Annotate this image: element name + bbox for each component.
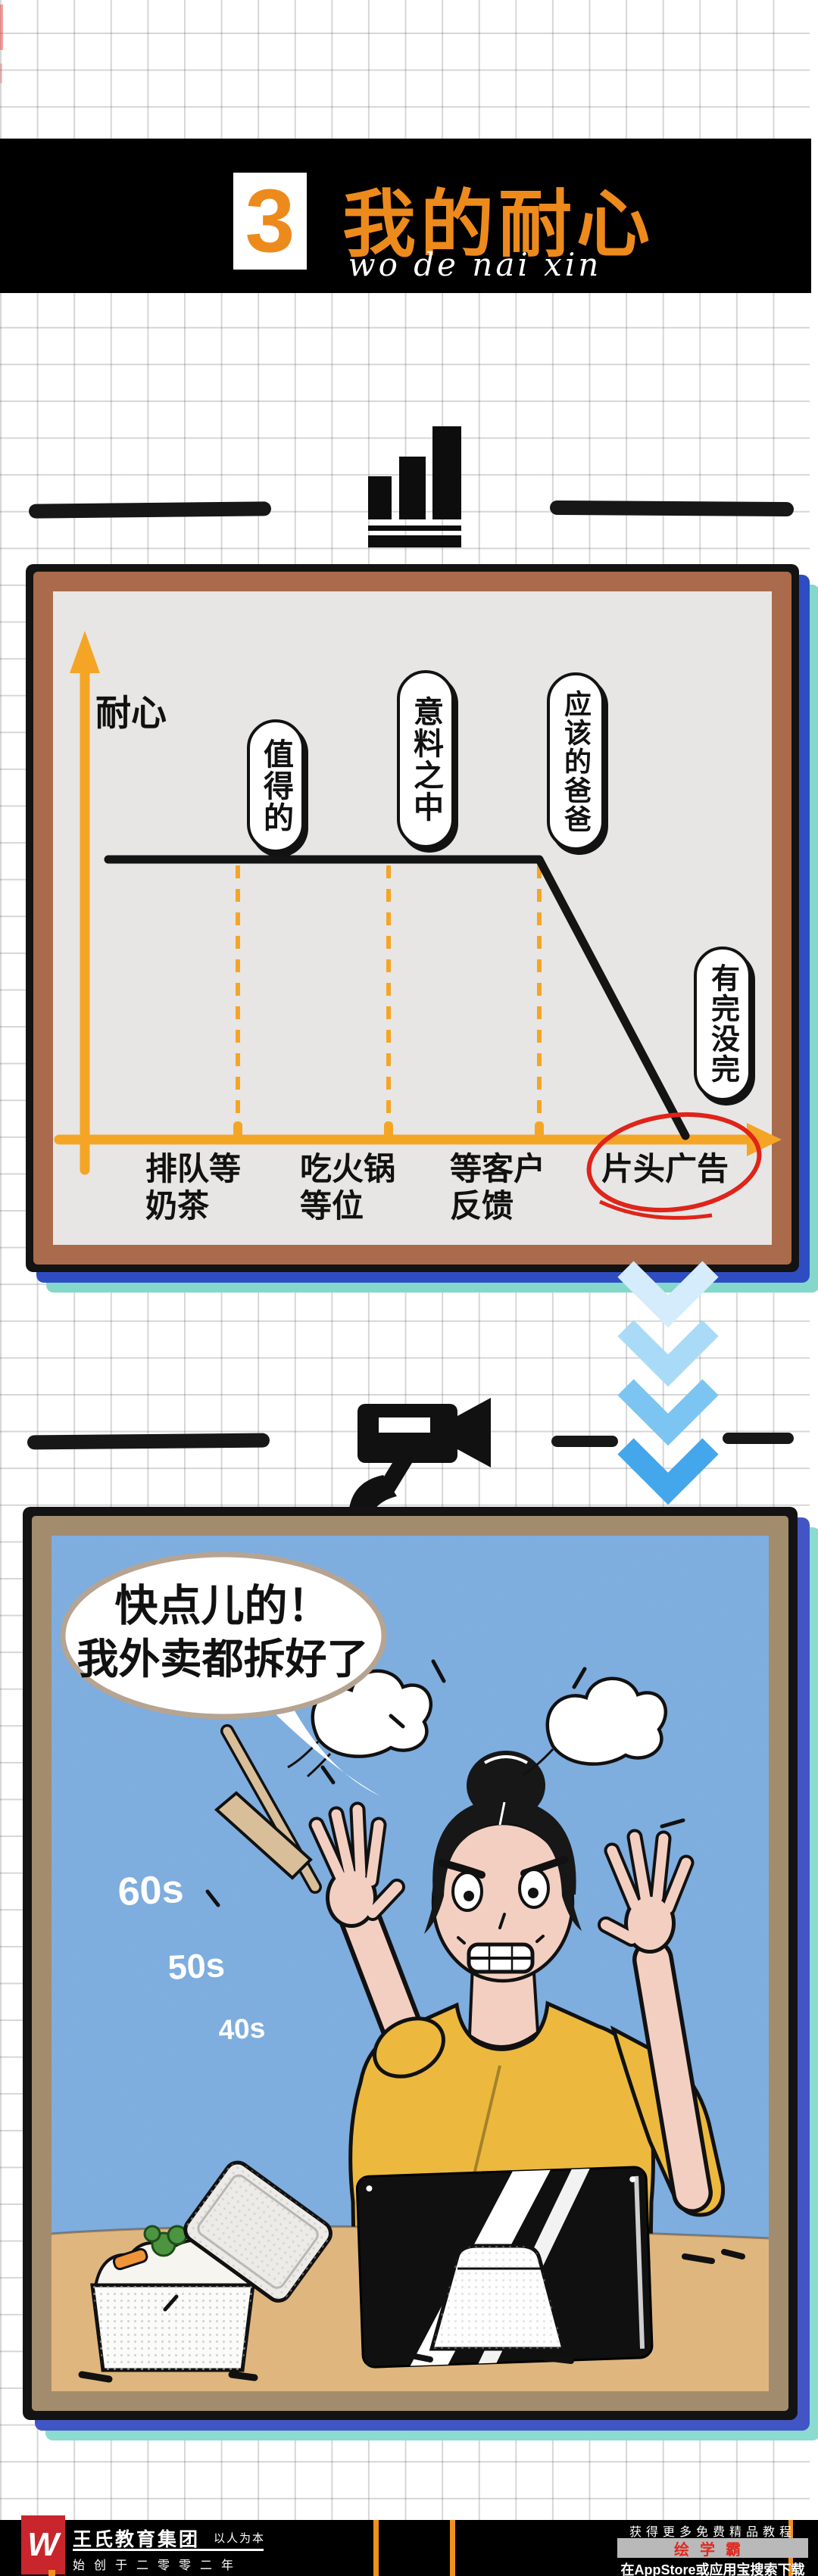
annotation-pill-1: 值得的	[247, 719, 304, 853]
footer-since: 始创于二零零二年	[73, 2555, 242, 2573]
footer-logo: W	[21, 2515, 65, 2574]
page-subtitle: wo de nai xin	[342, 246, 607, 283]
x-label-2: 吃火锅 等位	[300, 1151, 395, 1224]
x-label-3-line2: 反馈	[450, 1188, 545, 1225]
x-label-3: 等客户 反馈	[450, 1151, 545, 1224]
annotation-pill-2: 意料之中	[397, 670, 454, 848]
comic-page: 3 我的耐心 wo de nai xin	[0, 0, 818, 2576]
section-number-box: 3	[233, 173, 307, 270]
footer-bar: W 王氏教育集团 以人为本 始创于二零零二年 获得更多免费精品教程 绘学霸 在A…	[0, 2520, 818, 2576]
annotation-pill-3: 应该的爸爸	[547, 672, 604, 850]
footer-orange-tick	[48, 2570, 55, 2576]
comic-panel: 60s 50s 40s	[23, 1507, 798, 2420]
footer-motto: 以人为本	[214, 2530, 265, 2546]
annotation-pill-4: 有完没完	[694, 947, 751, 1101]
x-label-1-line1: 排队等	[145, 1151, 241, 1188]
bubble-text-line1: 快点儿的！	[115, 1582, 331, 1630]
edge-mark-bottom	[0, 64, 2, 83]
timer-40s: 40s	[217, 2012, 266, 2045]
footer-orange-bar-1	[373, 2520, 379, 2576]
footer-divider-line	[73, 2549, 264, 2551]
patience-chart-panel: 耐心 值得的 意料之中 应该的爸爸 有完没完 排队等 奶茶 吃火锅 等位 等客户…	[26, 564, 799, 1272]
timer-50s: 50s	[167, 1945, 226, 1987]
chart-dashed-guides	[238, 865, 539, 1127]
footer-promo-line2: 在AppStore或应用宝搜索下载	[617, 2559, 808, 2576]
x-label-3-line1: 等客户	[450, 1151, 545, 1188]
divider-stroke-right	[550, 501, 794, 516]
divider2-stroke-mid	[551, 1436, 618, 1447]
divider2-stroke-right	[723, 1433, 794, 1444]
x-label-1-line2: 奶茶	[145, 1188, 241, 1225]
y-axis-label: 耐心	[95, 684, 167, 736]
y-axis-arrowhead	[70, 631, 100, 673]
timer-60s: 60s	[117, 1867, 185, 1914]
x-label-2-line1: 吃火锅	[300, 1151, 395, 1188]
chevron-down-icons	[615, 1260, 721, 1510]
divider-stroke-left	[29, 501, 271, 518]
header-banner: 3 我的耐心 wo de nai xin	[0, 139, 811, 293]
section-number: 3	[245, 176, 295, 266]
x-label-2-line2: 等位	[300, 1188, 395, 1225]
comic-art: 60s 50s 40s	[52, 1536, 769, 2391]
red-highlight-ellipse	[556, 1087, 799, 1246]
edge-mark-top	[0, 5, 3, 50]
footer-app-name: 绘学霸	[674, 2537, 751, 2559]
divider2-stroke-left	[27, 1433, 270, 1450]
footer-app-badge: 绘学霸	[617, 2538, 808, 2558]
footer-orange-bar-2	[450, 2520, 455, 2576]
video-camera-icon	[342, 1392, 494, 1524]
bubble-text-line2: 我外卖都拆好了	[76, 1636, 368, 1683]
footer-company: 王氏教育集团	[73, 2525, 200, 2552]
logo-w-icon: W	[27, 2526, 59, 2564]
x-label-1: 排队等 奶茶	[145, 1151, 241, 1224]
